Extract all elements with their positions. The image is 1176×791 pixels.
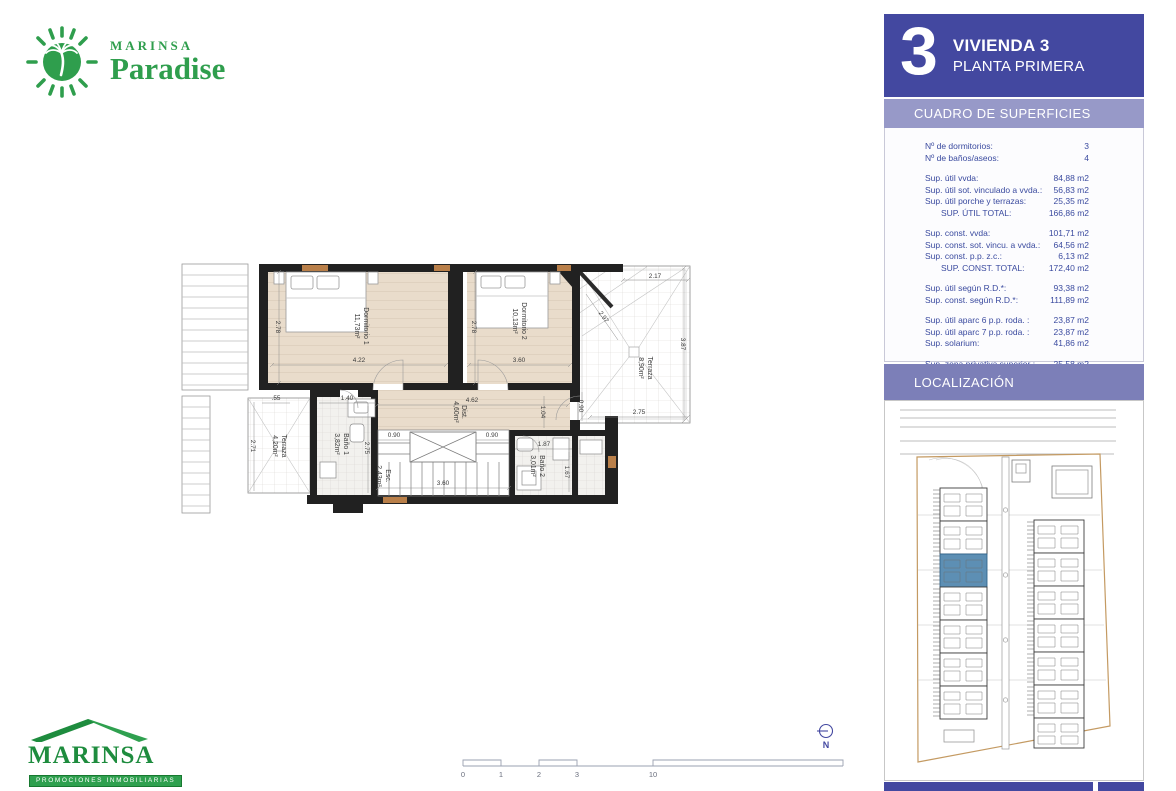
- room-area-bano2: 3,01m²: [529, 455, 536, 477]
- row-label: Nº de baños/aseos:: [925, 153, 1084, 165]
- scale-bar: 0 1 2 3 10: [456, 752, 856, 782]
- room-area-esc: 2,43m²: [375, 465, 382, 487]
- scale-label-3: 3: [575, 770, 579, 779]
- dim-dorm2-width: 3.60: [513, 357, 526, 364]
- unit-number: 3: [884, 21, 953, 90]
- dim-bano2-width: 1.87: [538, 441, 551, 448]
- row-value: 3: [1084, 141, 1089, 153]
- dim-dist-height: 1.04: [539, 406, 546, 419]
- floor-plan: 4.22 2.78 3.60 2.78 2.17 2.97 3.87 2.75 …: [178, 256, 693, 551]
- dim-terraceleft-top: .55: [272, 395, 281, 402]
- row-label: Sup. útil aparc 7 p.p. roda. :: [925, 327, 1054, 339]
- row-value: 84,88 m2: [1054, 173, 1089, 185]
- row-value: 101,71 m2: [1049, 228, 1089, 240]
- table-group: Sup. const. vvda:101,71 m2 Sup. const. s…: [885, 228, 1143, 274]
- table-row: Sup. útil porche y terrazas:25,35 m2: [885, 196, 1143, 208]
- table-row: Nº de baños/aseos:4: [885, 153, 1143, 165]
- room-label-dist: Dist.: [460, 405, 467, 419]
- dim-bano1-height: 2.75: [363, 442, 370, 455]
- brand-product: Paradise: [110, 51, 225, 87]
- row-label: Sup. útil según R.D.*:: [925, 283, 1054, 295]
- scale-label-0: 0: [461, 770, 465, 779]
- unit-title: VIVIENDA 3: [953, 36, 1085, 56]
- north-label: N: [823, 740, 830, 750]
- room-label-bano2: Baño 2: [538, 455, 545, 477]
- dim-dist-width: 4.62: [466, 397, 479, 404]
- room-area-terrace-right: 8,90m²: [637, 357, 644, 379]
- row-label: Sup. solarium:: [925, 338, 1054, 350]
- row-value: 111,89 m2: [1050, 295, 1089, 307]
- site-plan: [884, 400, 1144, 781]
- row-value: 4: [1084, 153, 1089, 165]
- location-header: LOCALIZACIÓN: [884, 364, 1144, 400]
- row-label: Sup. const. vvda:: [925, 228, 1049, 240]
- row-value: 166,86 m2: [1049, 208, 1089, 220]
- table-row: Sup. útil según R.D.*:93,38 m2: [885, 283, 1143, 295]
- table-group: Nº de dormitorios:3 Nº de baños/aseos:4: [885, 141, 1143, 164]
- dim-terraceleft-side: 2.71: [249, 440, 256, 453]
- table-row-total: SUP. CONST. TOTAL:172,40 m2: [885, 263, 1143, 275]
- footer-bar-narrow: [1098, 782, 1144, 791]
- pergola-slats: [182, 264, 248, 513]
- row-label: Sup. útil aparc 6 p.p. roda. :: [925, 315, 1054, 327]
- row-value: 23,87 m2: [1054, 315, 1089, 327]
- table-row: Sup. útil aparc 6 p.p. roda. :23,87 m2: [885, 315, 1143, 327]
- table-group: Sup. útil según R.D.*:93,38 m2 Sup. cons…: [885, 283, 1143, 306]
- dim-terrace-top: 2.17: [649, 273, 662, 280]
- row-value: 25,35 m2: [1054, 196, 1089, 208]
- room-label-dorm2: Dormitorio 2: [520, 302, 527, 340]
- location-map: [884, 400, 1144, 781]
- surface-table: Nº de dormitorios:3 Nº de baños/aseos:4 …: [884, 128, 1144, 362]
- room-area-dist: 4,60m²: [452, 401, 459, 423]
- footer-logo-name: MARINSA: [28, 743, 186, 768]
- dim-terrace-right: 3.87: [679, 338, 686, 351]
- row-label: SUP. CONST. TOTAL:: [925, 263, 1049, 275]
- row-label: Sup. útil sot. vinculado a vvda.:: [925, 185, 1054, 197]
- room-area-dorm1: 11,73m²: [353, 314, 360, 339]
- table-row: Sup. útil vvda:84,88 m2: [885, 173, 1143, 185]
- row-label: SUP. ÚTIL TOTAL:: [925, 208, 1049, 220]
- building-column-right: [1027, 520, 1084, 748]
- row-value: 172,40 m2: [1049, 263, 1089, 275]
- table-group: Sup. útil vvda:84,88 m2 Sup. útil sot. v…: [885, 173, 1143, 219]
- brand-logo: MARINSA Paradise: [20, 20, 225, 104]
- table-group: Sup. útil aparc 6 p.p. roda. :23,87 m2 S…: [885, 315, 1143, 350]
- table-row: Sup. útil aparc 7 p.p. roda. :23,87 m2: [885, 327, 1143, 339]
- palm-sun-icon: [20, 20, 104, 104]
- dim-stair-left: 0.90: [388, 432, 401, 439]
- room-label-bano1: Baño 1: [342, 433, 349, 455]
- scale-label-1: 1: [499, 770, 503, 779]
- dim-terrace-bottom: 2.75: [633, 409, 646, 416]
- row-label: Sup. const. p.p. z.c.:: [925, 251, 1058, 263]
- building-column-left: [933, 488, 987, 719]
- table-row: Nº de dormitorios:3: [885, 141, 1143, 153]
- dim-stair-right: 0.90: [486, 432, 499, 439]
- row-value: 6,13 m2: [1058, 251, 1089, 263]
- dim-dorm2-height: 2.78: [470, 321, 477, 334]
- row-value: 93,38 m2: [1054, 283, 1089, 295]
- row-value: 23,87 m2: [1054, 327, 1089, 339]
- row-value: 64,56 m2: [1054, 240, 1089, 252]
- room-label-terrace-left: Terraza: [280, 435, 287, 458]
- row-value: 41,86 m2: [1054, 338, 1089, 350]
- footer-logo-tagline: PROMOCIONES INMOBILIARIAS: [29, 775, 182, 787]
- dim-terrace-left: 0.90: [577, 400, 584, 413]
- table-row: Sup. solarium:41,86 m2: [885, 338, 1143, 350]
- scale-label-2: 2: [537, 770, 541, 779]
- table-row-total: SUP. ÚTIL TOTAL:166,86 m2: [885, 208, 1143, 220]
- row-label: Sup. const. sot. vincu. a vvda.:: [925, 240, 1054, 252]
- row-label: Sup. útil porche y terrazas:: [925, 196, 1054, 208]
- room-area-terrace-left: 4,20m²: [271, 435, 278, 457]
- room-area-bano1: 3,82m²: [333, 433, 340, 455]
- dim-dorm1-height: 2.78: [274, 321, 281, 334]
- unit-header: 3 VIVIENDA 3 PLANTA PRIMERA: [884, 14, 1144, 97]
- brand-text: MARINSA Paradise: [110, 38, 225, 87]
- surfaces-header: CUADRO DE SUPERFICIES: [884, 97, 1144, 128]
- page: MARINSA Paradise: [0, 0, 1176, 791]
- central-walk: [1002, 457, 1009, 749]
- dim-dorm1-width: 4.22: [353, 357, 366, 364]
- unit-subtitle: PLANTA PRIMERA: [953, 58, 1085, 75]
- table-row: Sup. const. según R.D.*:111,89 m2: [885, 295, 1143, 307]
- room-label-esc: Esc.: [384, 469, 391, 482]
- dim-bano1-width: 1.40: [341, 395, 354, 402]
- info-sidebar: 3 VIVIENDA 3 PLANTA PRIMERA CUADRO DE SU…: [884, 0, 1144, 791]
- row-label: Nº de dormitorios:: [925, 141, 1084, 153]
- table-row: Sup. const. sot. vincu. a vvda.:64,56 m2: [885, 240, 1143, 252]
- table-row: Sup. const. p.p. z.c.:6,13 m2: [885, 251, 1143, 263]
- row-value: 56,83 m2: [1054, 185, 1089, 197]
- north-arrow-icon: N: [806, 720, 846, 756]
- row-label: Sup. const. según R.D.*:: [925, 295, 1050, 307]
- dim-stair-width: 3.60: [437, 480, 450, 487]
- scale-label-5: 10: [649, 770, 657, 779]
- table-row: Sup. const. vvda:101,71 m2: [885, 228, 1143, 240]
- room-label-dorm1: Dormitorio 1: [362, 307, 369, 345]
- footer-bar-wide: [884, 782, 1093, 791]
- row-label: Sup. útil vvda:: [925, 173, 1054, 185]
- table-row: Sup. útil sot. vinculado a vvda.:56,83 m…: [885, 185, 1143, 197]
- room-area-dorm2: 10,13m²: [511, 308, 518, 334]
- dim-bano2-height: 1.67: [563, 466, 570, 479]
- room-label-terrace-right: Terraza: [646, 357, 653, 380]
- roof-icon: [26, 716, 156, 742]
- footer-logo: MARINSA PROMOCIONES INMOBILIARIAS: [26, 716, 186, 787]
